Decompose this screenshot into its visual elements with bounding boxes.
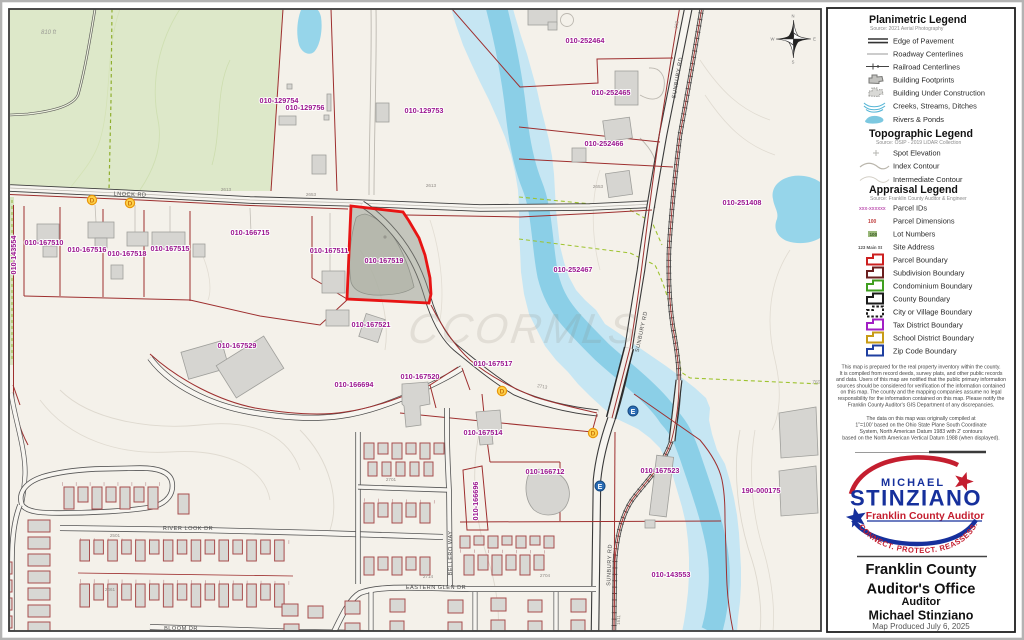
- svg-text:2613: 2613: [221, 187, 232, 192]
- svg-text:010-167529: 010-167529: [218, 341, 257, 350]
- svg-text:Spot Elevation: Spot Elevation: [893, 149, 941, 158]
- svg-text:BELLERO WAY: BELLERO WAY: [448, 531, 454, 576]
- svg-text:Parcel Boundary: Parcel Boundary: [893, 256, 948, 265]
- svg-text:010-167523: 010-167523: [641, 466, 680, 475]
- svg-text:School District Boundary: School District Boundary: [893, 334, 974, 343]
- svg-text:010-252467: 010-252467: [554, 265, 593, 274]
- svg-text:N: N: [791, 14, 794, 19]
- svg-text:123 Main St: 123 Main St: [858, 245, 883, 250]
- svg-text:Intermediate Contour: Intermediate Contour: [893, 175, 963, 184]
- svg-text:based on the North American Ve: based on the North American Vertical Dat…: [842, 435, 999, 441]
- svg-text:Franklin County: Franklin County: [865, 562, 977, 578]
- svg-text:on this map. The county and th: on this map. The county and the mapping …: [840, 390, 1001, 396]
- svg-text:xxx-xxxxxx: xxx-xxxxxx: [859, 206, 886, 212]
- svg-text:Roadway Centerlines: Roadway Centerlines: [893, 50, 964, 59]
- svg-text:E: E: [631, 409, 636, 416]
- svg-text:System, North American Datum 1: System, North American Datum 1983 with 2…: [860, 429, 983, 435]
- svg-text:010-167517: 010-167517: [474, 359, 513, 368]
- svg-text:D: D: [90, 198, 95, 205]
- svg-text:Auditor: Auditor: [901, 596, 941, 608]
- svg-text:Index Contour: Index Contour: [893, 162, 940, 171]
- svg-text:100: 100: [868, 219, 877, 225]
- svg-text:sources should be considered f: sources should be considered for verific…: [837, 383, 1005, 389]
- svg-text:010-129753: 010-129753: [405, 106, 444, 115]
- svg-text:D: D: [128, 201, 133, 208]
- svg-text:Building Footprints: Building Footprints: [893, 76, 955, 85]
- svg-text:1611: 1611: [616, 614, 621, 624]
- svg-text:Source: Franklin County Audito: Source: Franklin County Auditor & Engine…: [870, 196, 967, 202]
- svg-text:010-166715: 010-166715: [231, 228, 270, 237]
- svg-text:Subdivision Boundary: Subdivision Boundary: [893, 269, 965, 278]
- svg-text:2701: 2701: [386, 477, 397, 482]
- svg-text:010-252464: 010-252464: [566, 36, 606, 45]
- svg-text:E: E: [813, 37, 816, 42]
- svg-text:010-167511: 010-167511: [310, 246, 349, 255]
- svg-text:010-252465: 010-252465: [592, 88, 631, 97]
- svg-text:Site Address: Site Address: [893, 243, 935, 252]
- svg-text:010-167520: 010-167520: [401, 372, 440, 381]
- svg-text:Creeks, Streams, Ditches: Creeks, Streams, Ditches: [893, 102, 977, 111]
- svg-text:010-167518: 010-167518: [108, 249, 147, 258]
- svg-text:Railroad Centerlines: Railroad Centerlines: [893, 63, 960, 72]
- svg-text:Building Under Construction: Building Under Construction: [893, 89, 985, 98]
- svg-text:2653: 2653: [593, 184, 604, 189]
- svg-text:Condominium Boundary: Condominium Boundary: [893, 282, 973, 291]
- svg-text:2613: 2613: [426, 183, 437, 188]
- svg-text:City or Village Boundary: City or Village Boundary: [893, 308, 972, 317]
- svg-text:010-167514: 010-167514: [464, 428, 504, 437]
- svg-text:EASTERN GLEN DR: EASTERN GLEN DR: [406, 585, 466, 591]
- svg-text:D: D: [591, 431, 596, 438]
- svg-text:responsibility for the informa: responsibility for the information conta…: [838, 396, 1005, 402]
- svg-text:Franklin County Auditor's GIS: Franklin County Auditor's GIS Department…: [848, 402, 995, 408]
- svg-text:2704: 2704: [540, 573, 551, 578]
- svg-text:010-167515: 010-167515: [151, 244, 190, 253]
- svg-text:010-129756: 010-129756: [286, 103, 325, 112]
- svg-text:2714: 2714: [423, 574, 434, 579]
- svg-text:S: S: [792, 60, 795, 65]
- svg-text:Map Produced July 6, 2025: Map Produced July 6, 2025: [872, 622, 970, 631]
- svg-text:100: 100: [870, 232, 878, 237]
- svg-text:and data. Users of this map ar: and data. Users of this map are notified…: [836, 377, 1006, 383]
- svg-text:Michael Stinziano: Michael Stinziano: [869, 609, 974, 623]
- svg-text:010-143553: 010-143553: [652, 570, 691, 579]
- svg-text:Appraisal Legend: Appraisal Legend: [869, 184, 958, 196]
- svg-text:It is compiled from record dee: It is compiled from record deeds, survey…: [840, 371, 1003, 377]
- svg-text:STINZIANO: STINZIANO: [850, 486, 982, 511]
- svg-text:010-166696: 010-166696: [471, 482, 480, 521]
- svg-text:Rivers & Ponds: Rivers & Ponds: [893, 115, 944, 124]
- svg-text:The data on this map was origi: The data on this map was originally comp…: [866, 416, 976, 422]
- svg-text:010-167521: 010-167521: [352, 320, 391, 329]
- svg-text:Zip Code Boundary: Zip Code Boundary: [893, 347, 957, 356]
- svg-text:810 ft: 810 ft: [41, 30, 56, 36]
- svg-text:LNOCK RD: LNOCK RD: [113, 191, 146, 198]
- svg-text:1”=100' based on the Ohio Stat: 1”=100' based on the Ohio State Plane So…: [855, 422, 986, 428]
- svg-text:Parcel Dimensions: Parcel Dimensions: [893, 217, 955, 226]
- svg-text:010-167510: 010-167510: [25, 238, 64, 247]
- svg-text:010-167516: 010-167516: [68, 245, 107, 254]
- svg-text:Lot Numbers: Lot Numbers: [893, 230, 936, 239]
- svg-text:010-166694: 010-166694: [335, 380, 375, 389]
- svg-text:010-166712: 010-166712: [526, 467, 565, 476]
- svg-text:190-000175: 190-000175: [742, 486, 781, 495]
- svg-text:This map is prepared for the r: This map is prepared for the real proper…: [841, 365, 1000, 371]
- svg-text:Edge of Pavement: Edge of Pavement: [893, 37, 954, 46]
- svg-text:2501: 2501: [110, 533, 121, 538]
- svg-text:Parcel IDs: Parcel IDs: [893, 204, 927, 213]
- svg-text:D: D: [500, 389, 505, 396]
- svg-text:Planimetric Legend: Planimetric Legend: [869, 14, 967, 26]
- svg-text:Source: 2021 Aerial Photograph: Source: 2021 Aerial Photography: [870, 26, 944, 32]
- svg-text:E: E: [598, 484, 603, 491]
- svg-text:2461: 2461: [105, 587, 116, 592]
- svg-text:RIVER LOOK DR: RIVER LOOK DR: [163, 526, 213, 532]
- svg-text:Source: OSIP - 2019 LiDAR Col: Source: OSIP - 2019 LiDAR Collection: [876, 140, 961, 146]
- svg-text:010-167519: 010-167519: [365, 256, 404, 265]
- svg-text:CCORMLS: CCORMLS: [406, 305, 643, 352]
- svg-text:010-143554: 010-143554: [9, 235, 18, 275]
- svg-text:County Boundary: County Boundary: [893, 295, 950, 304]
- svg-text:010-251408: 010-251408: [723, 198, 762, 207]
- svg-text:2653: 2653: [306, 192, 317, 197]
- svg-text:010-252466: 010-252466: [585, 139, 624, 148]
- svg-text:Tax District Boundary: Tax District Boundary: [893, 321, 963, 330]
- svg-text:Topographic Legend: Topographic Legend: [869, 128, 973, 140]
- svg-text:W: W: [771, 37, 775, 42]
